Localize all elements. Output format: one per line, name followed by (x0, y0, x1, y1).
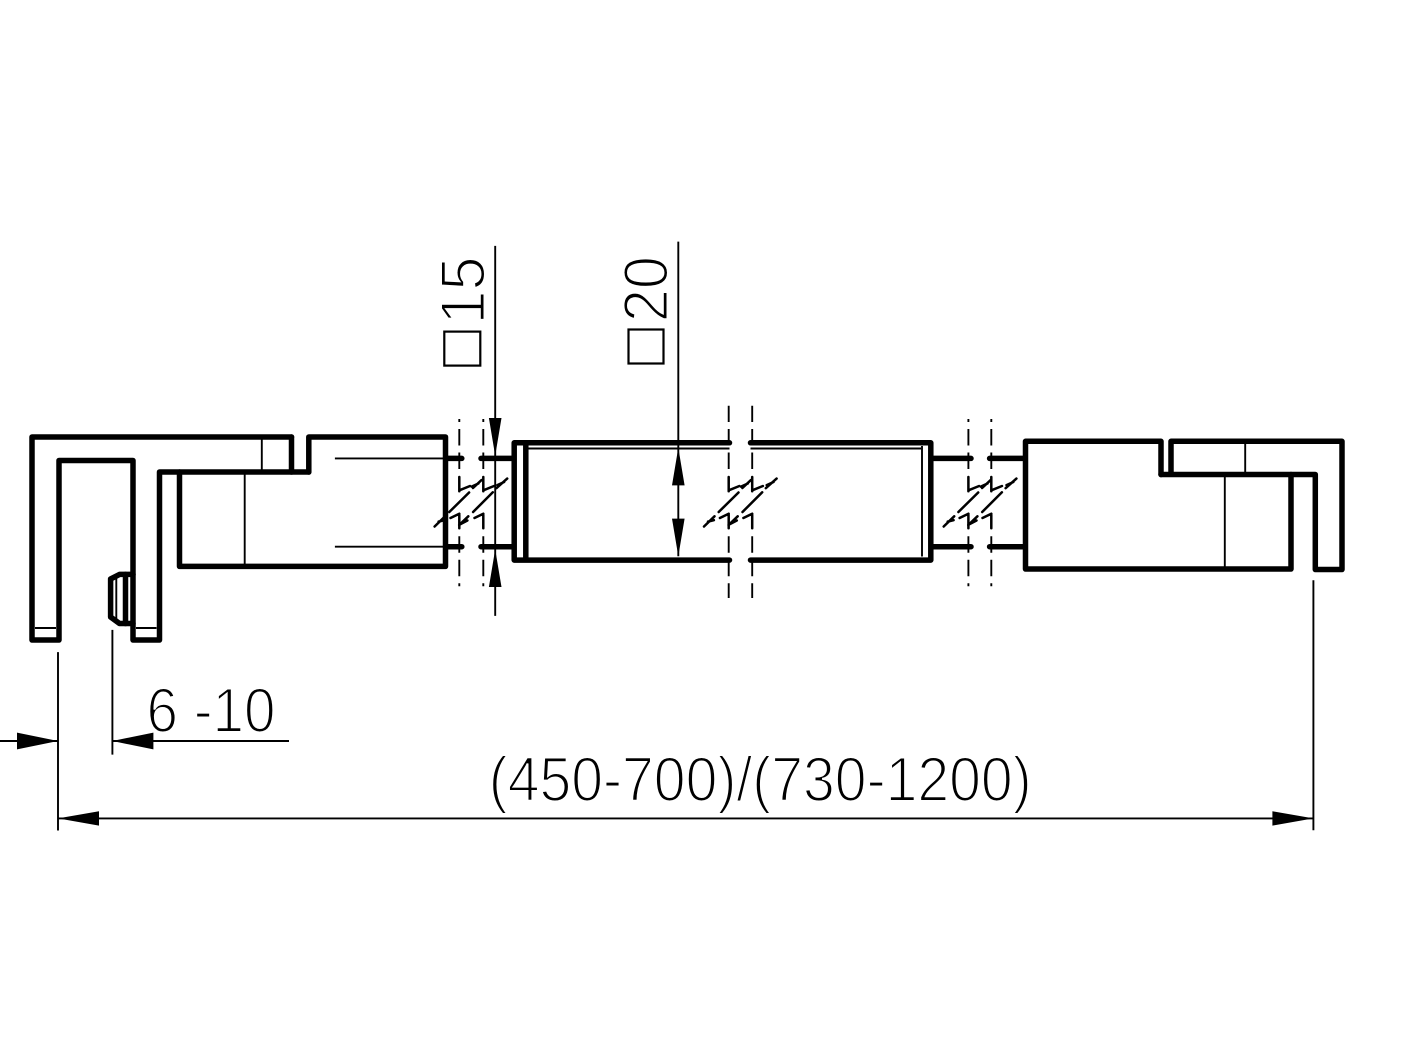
svg-text:(450-700)/(730-1200): (450-700)/(730-1200) (489, 745, 1032, 815)
svg-text:15: 15 (429, 257, 499, 325)
svg-text:20: 20 (612, 256, 682, 322)
svg-text:6 -10: 6 -10 (147, 676, 276, 746)
